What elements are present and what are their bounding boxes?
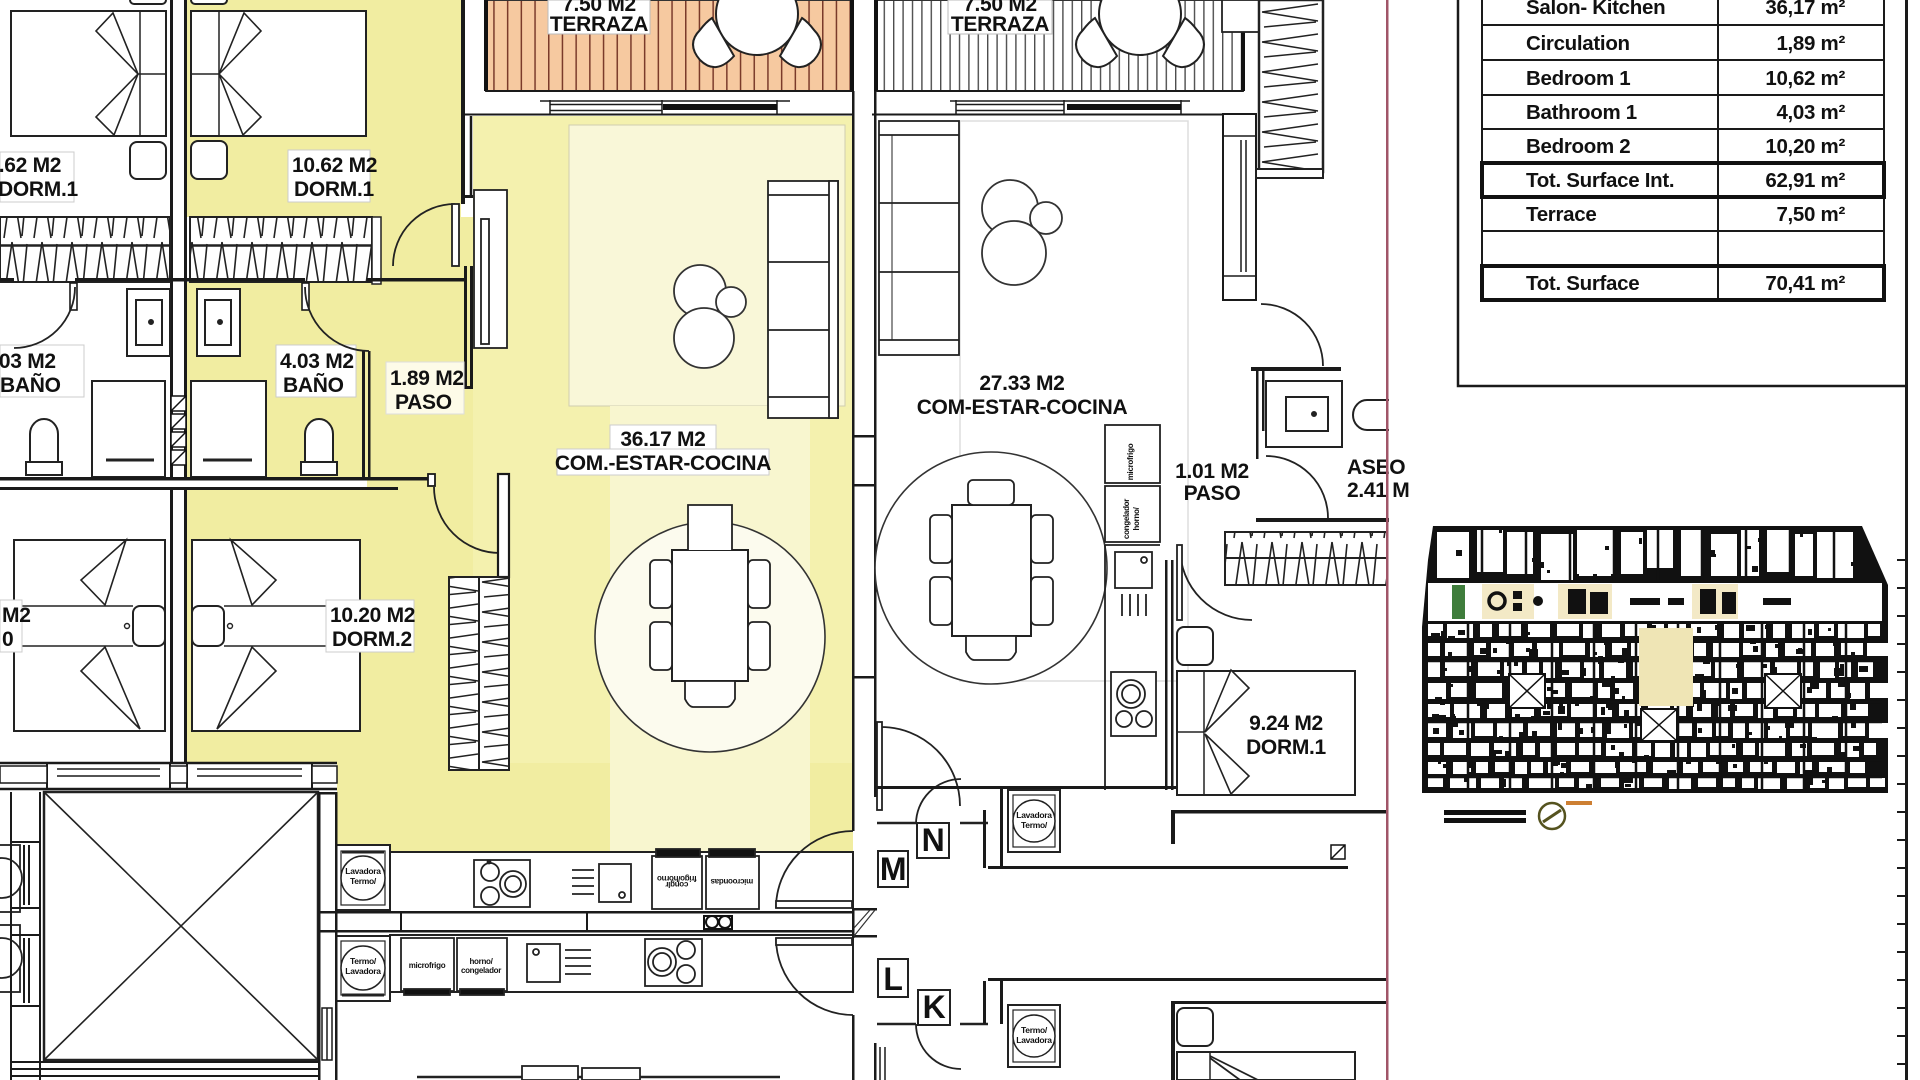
svg-text:Terrace: Terrace [1526,203,1596,226]
svg-text:10.62 M2: 10.62 M2 [0,154,61,177]
svg-text:conglr: conglr [665,880,688,889]
svg-text:1,89 m²: 1,89 m² [1776,32,1845,55]
svg-text:Termo/: Termo/ [1021,1025,1048,1035]
svg-text:10,20 m²: 10,20 m² [1765,135,1845,158]
svg-text:Lavadora: Lavadora [345,966,381,976]
svg-text:horno/: horno/ [469,957,493,966]
svg-text:congelador: congelador [461,966,501,975]
svg-text:10.62 M2: 10.62 M2 [292,154,377,177]
svg-text:7,50 m²: 7,50 m² [1776,203,1845,226]
svg-text:TERRAZA: TERRAZA [550,13,648,36]
svg-text:Termo/: Termo/ [1021,820,1048,830]
svg-text:PASO: PASO [1184,482,1241,505]
svg-text:62,91 m²: 62,91 m² [1765,169,1845,192]
svg-text:microondas: microondas [710,877,753,886]
svg-text:4,03 m²: 4,03 m² [1776,101,1845,124]
svg-text:70,41 m²: 70,41 m² [1765,272,1845,295]
svg-text:microfrigo: microfrigo [1126,443,1135,480]
svg-text:Salon- Kitchen: Salon- Kitchen [1526,0,1665,19]
svg-text:congelador: congelador [1122,499,1131,539]
svg-text:BAÑO: BAÑO [0,374,61,397]
svg-text:1.01 M2: 1.01 M2 [1175,460,1249,483]
svg-text:K: K [923,989,946,1025]
svg-text:27.33 M2: 27.33 M2 [979,372,1064,395]
svg-text:COM.-ESTAR-COCINA: COM.-ESTAR-COCINA [555,452,771,475]
svg-text:M: M [880,851,906,887]
svg-text:Lavadora: Lavadora [1016,1035,1052,1045]
svg-text:Bedroom 1: Bedroom 1 [1526,67,1630,90]
svg-text:Bedroom 2: Bedroom 2 [1526,135,1630,158]
svg-text:9.24 M2: 9.24 M2 [1249,712,1323,735]
svg-text:0: 0 [2,628,13,651]
svg-text:Bathroom 1: Bathroom 1 [1526,101,1637,124]
svg-text:L: L [883,961,902,997]
svg-text:36,17 m²: 36,17 m² [1765,0,1845,19]
svg-text:ASEO: ASEO [1347,456,1405,479]
svg-text:horno/: horno/ [1132,506,1141,530]
svg-text:Circulation: Circulation [1526,32,1630,55]
svg-text:Lavadora: Lavadora [345,866,381,876]
svg-text:PASO: PASO [395,391,452,414]
svg-text:M2: M2 [2,604,31,627]
svg-text:N: N [922,822,945,858]
svg-text:DORM.2: DORM.2 [332,628,412,651]
svg-text:36.17 M2: 36.17 M2 [620,428,705,451]
svg-text:1.89 M2: 1.89 M2 [390,367,464,390]
svg-text:Termo/: Termo/ [350,956,377,966]
svg-text:COM-ESTAR-COCINA: COM-ESTAR-COCINA [917,396,1128,419]
svg-text:Tot. Surface Int.: Tot. Surface Int. [1526,169,1674,192]
svg-text:BAÑO: BAÑO [283,374,344,397]
svg-text:2.41 M: 2.41 M [1347,479,1409,502]
svg-text:10.20 M2: 10.20 M2 [330,604,415,627]
svg-text:4.03 M2: 4.03 M2 [0,350,56,373]
svg-text:Lavadora: Lavadora [1016,810,1052,820]
svg-text:Termo/: Termo/ [350,876,377,886]
svg-text:DORM.1: DORM.1 [0,178,78,201]
svg-text:Tot. Surface: Tot. Surface [1526,272,1639,295]
svg-text:microfrigo: microfrigo [409,961,446,970]
svg-text:DORM.1: DORM.1 [1246,736,1326,759]
svg-text:10,62 m²: 10,62 m² [1765,67,1845,90]
svg-text:TERRAZA: TERRAZA [951,13,1049,36]
svg-text:DORM.1: DORM.1 [294,178,374,201]
svg-text:4.03 M2: 4.03 M2 [280,350,354,373]
